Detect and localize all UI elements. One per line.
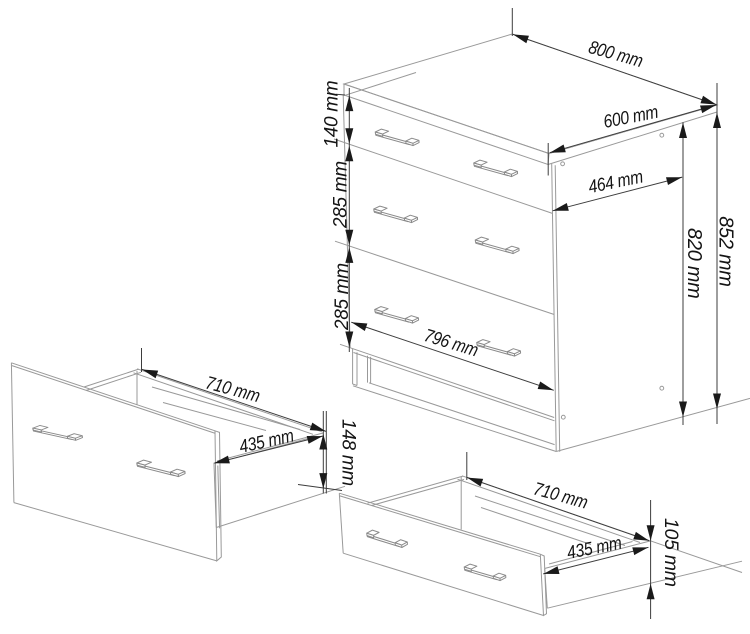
svg-text:435 mm: 435 mm [237,424,296,457]
svg-text:464 mm: 464 mm [586,165,644,197]
svg-text:435 mm: 435 mm [565,532,623,564]
svg-text:148 mm: 148 mm [338,419,359,486]
svg-text:600 mm: 600 mm [602,101,660,133]
svg-text:852 mm: 852 mm [715,216,737,286]
svg-text:796 mm: 796 mm [422,324,481,361]
svg-text:820 mm: 820 mm [683,228,705,298]
svg-text:285 mm: 285 mm [331,161,352,229]
svg-text:285 mm: 285 mm [332,263,353,331]
svg-text:800 mm: 800 mm [586,36,645,72]
svg-text:140 mm: 140 mm [322,81,343,148]
svg-text:105 mm: 105 mm [660,518,682,587]
